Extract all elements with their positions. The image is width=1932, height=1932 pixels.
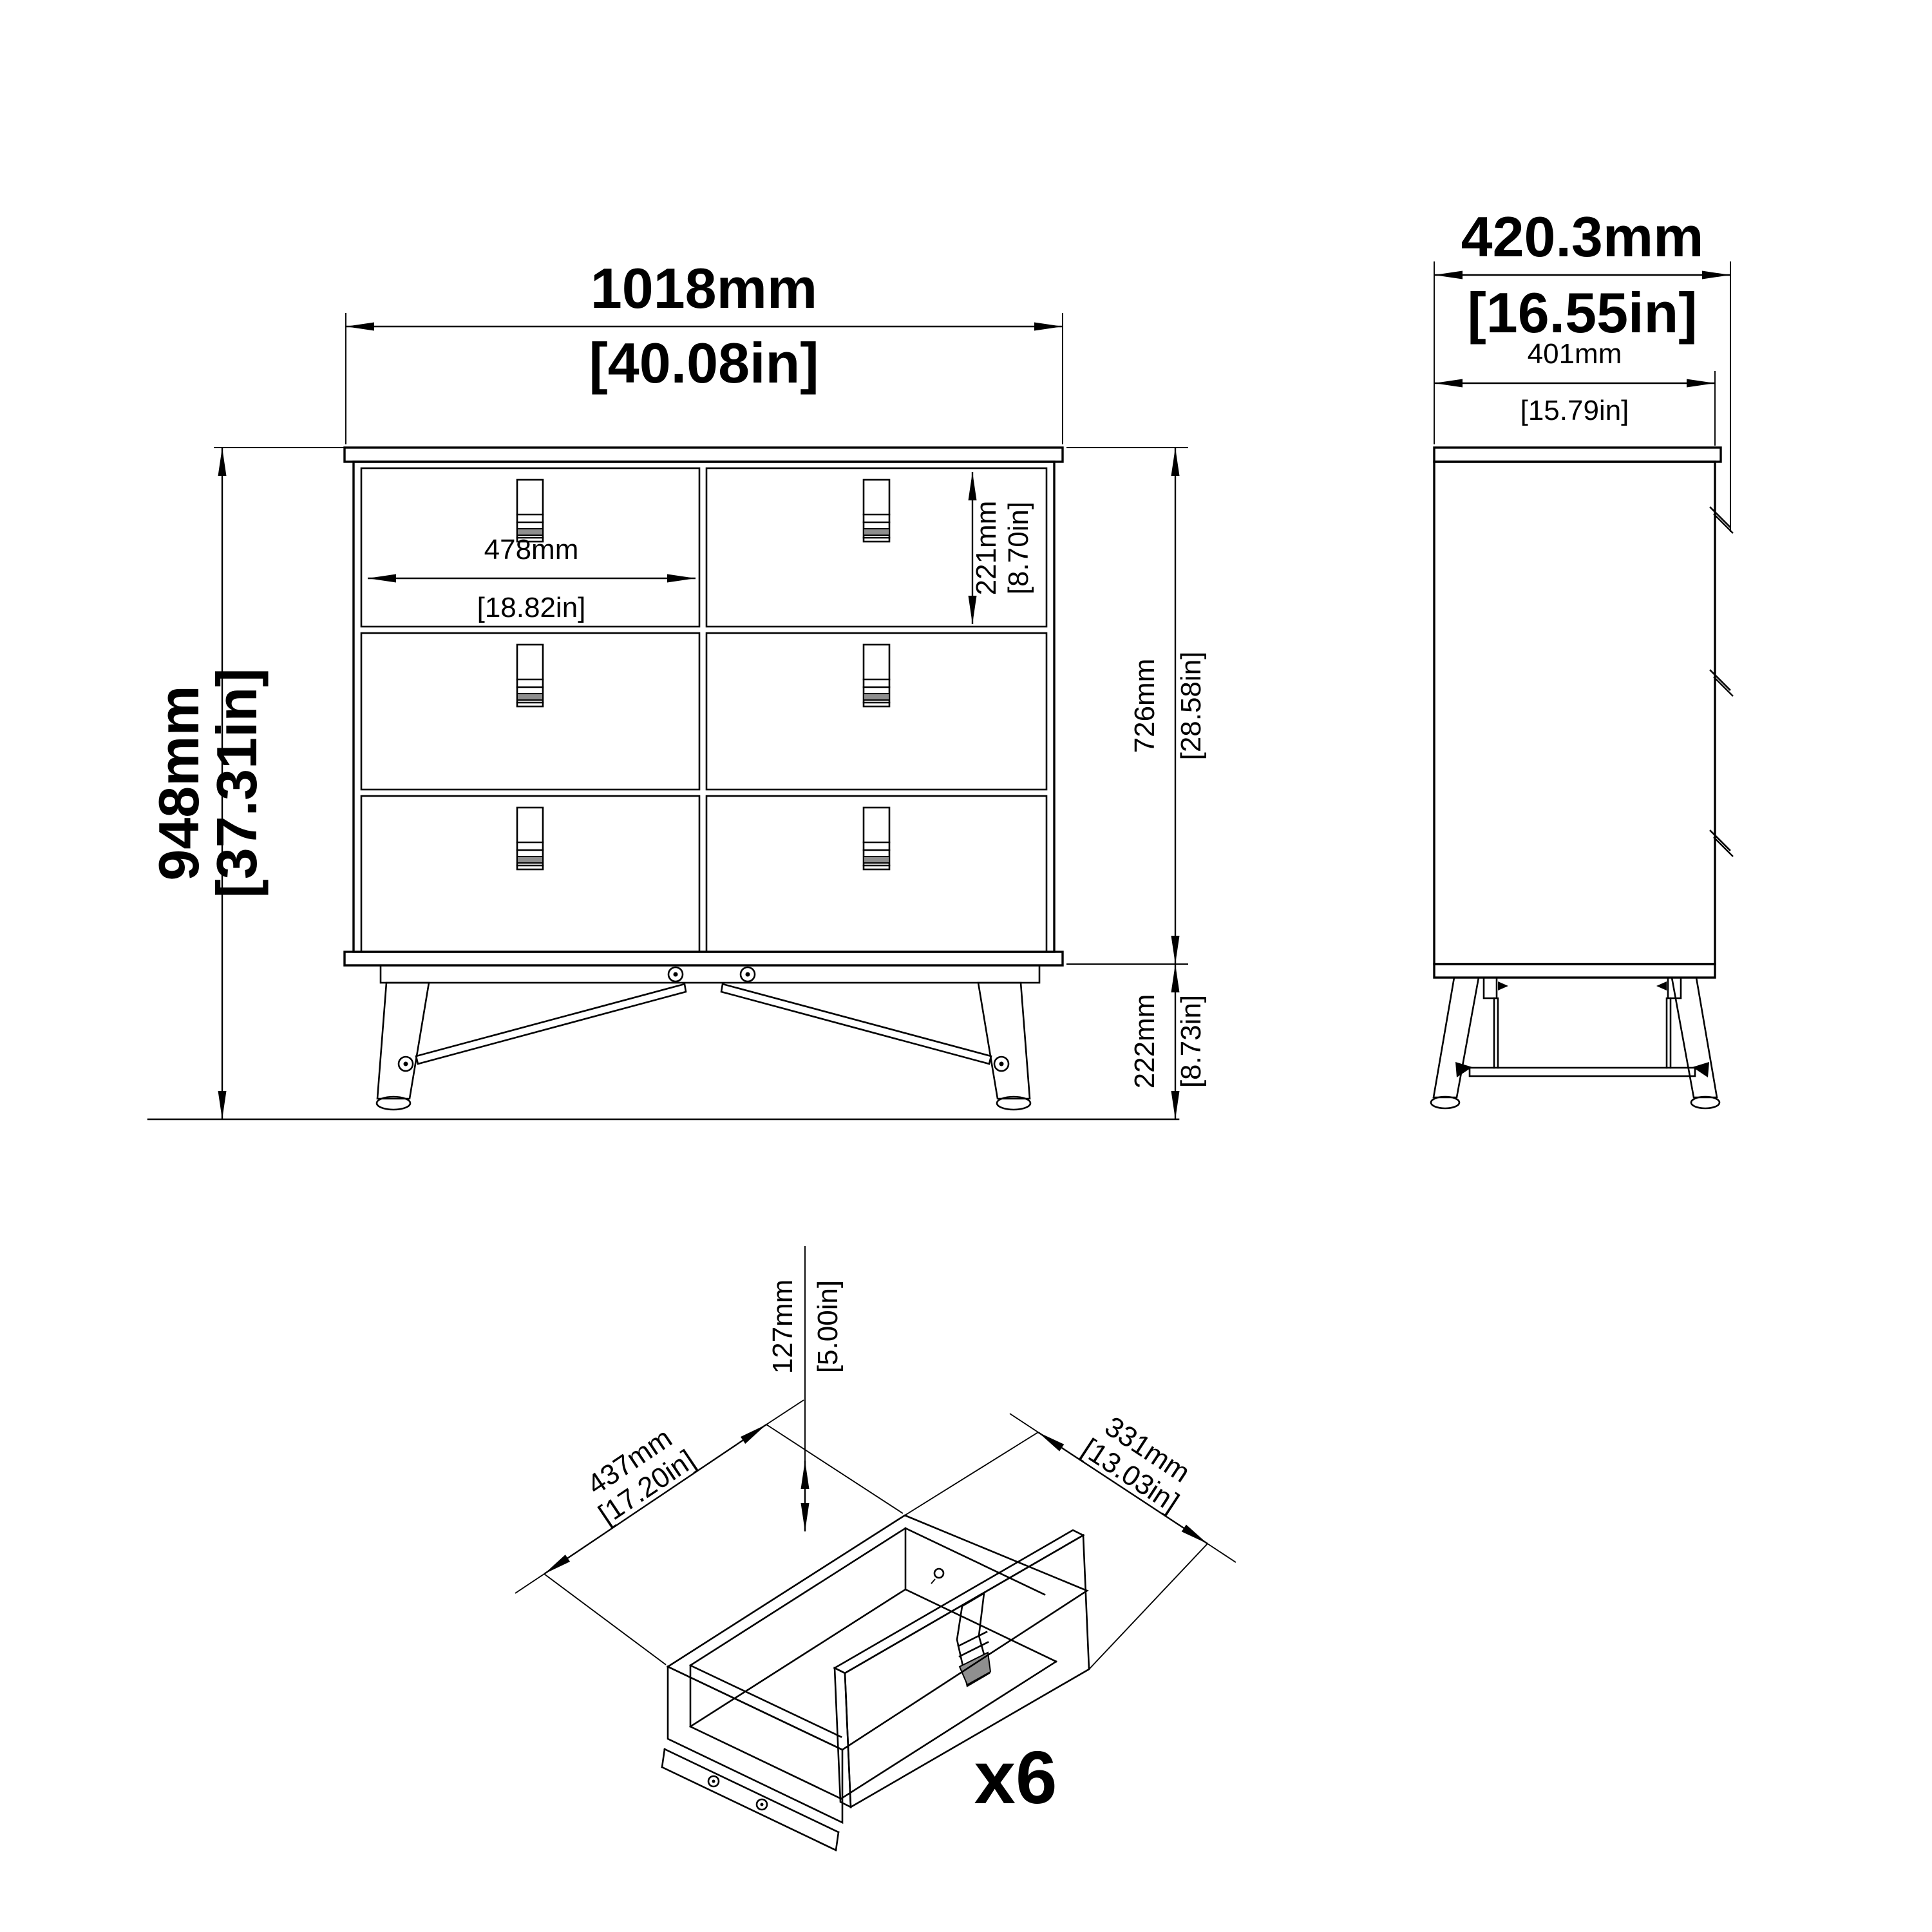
dim-front-height: 948mm [37.31in] (147, 448, 345, 1119)
front-top-panel (345, 448, 1063, 462)
front-drawer-4 (706, 633, 1046, 790)
dim-drawer-height: 127mm [5.00in] (767, 1246, 844, 1531)
side-leg-back (1431, 978, 1479, 1108)
technical-drawing: 1018mm [40.08in] 948mm [37.31in] 726mm [… (0, 0, 1932, 1932)
front-handle-5 (517, 808, 543, 869)
side-cabinet (1431, 448, 1733, 1108)
dim-side-inner-depth: 401mm [15.79in] (1434, 338, 1715, 446)
drawer-width-in-label: [18.82in] (477, 592, 586, 623)
front-body-mm-label: 726mm (1129, 659, 1160, 753)
front-width-in-label: [40.08in] (589, 331, 819, 395)
front-handle-3 (517, 645, 543, 706)
top-drawer-mm-label: 221mm (971, 501, 1002, 596)
front-handle-4 (864, 645, 889, 706)
drawer-detail-view: 127mm [5.00in] 437mm [17.20in] 331mm [13… (515, 1246, 1236, 1850)
side-depth-in-label: [16.55in] (1467, 281, 1697, 345)
front-bottom-panel (345, 952, 1063, 965)
front-leg-right (978, 983, 1030, 1110)
side-depth-mm-label: 420.3mm (1461, 205, 1704, 269)
back-wall-screw-icon (934, 1569, 943, 1578)
side-handle-3 (1710, 831, 1733, 857)
side-handle-2 (1710, 670, 1733, 696)
drawer-slide-rail (662, 1749, 838, 1850)
dim-front-top-drawer-height: 221mm [8.70in] (971, 472, 1034, 624)
front-drawer-5 (361, 796, 699, 952)
front-body-in-label: [28.58in] (1175, 652, 1207, 761)
dim-drawer-width: 437mm [17.20in] (515, 1400, 903, 1665)
front-leg-left (377, 983, 429, 1110)
drawer-width-mm-label: 478mm (484, 534, 579, 565)
side-top-panel (1434, 448, 1721, 462)
dim-front-body-height: 726mm [28.58in] (1066, 448, 1207, 964)
front-view: 1018mm [40.08in] 948mm [37.31in] 726mm [… (147, 256, 1207, 1119)
side-leg-front (1672, 978, 1719, 1108)
dim-front-drawer-width: 478mm [18.82in] (368, 534, 696, 623)
side-body (1434, 462, 1715, 964)
front-width-mm-label: 1018mm (591, 256, 817, 320)
front-leg-in-label: [8.73in] (1175, 995, 1207, 1088)
front-handle-1 (517, 480, 543, 542)
leg-bracket (1484, 978, 1497, 998)
front-height-mm-label: 948mm (147, 685, 211, 880)
front-leg-rail (381, 965, 1039, 983)
front-body (354, 462, 1054, 952)
drawer-quantity-label: x6 (974, 1736, 1057, 1819)
dim-front-leg-height: 222mm [8.73in] (1129, 964, 1207, 1119)
dim-drawer-depth: 331mm [13.03in] (905, 1406, 1236, 1669)
front-leg-mm-label: 222mm (1129, 994, 1160, 1089)
front-stretcher-left (416, 984, 686, 1064)
side-leg-assembly (1431, 978, 1719, 1108)
front-handle-6 (864, 808, 889, 869)
drawer-box-rim (668, 1515, 1087, 1750)
front-drawer-6 (706, 796, 1046, 952)
bracket-screw-icon (1498, 981, 1508, 990)
dim-front-width: 1018mm [40.08in] (346, 256, 1063, 444)
side-stretcher (1470, 1068, 1695, 1076)
drawer-height-mm-label: 127mm (767, 1280, 799, 1374)
side-handle-1 (1710, 507, 1733, 533)
drawer-height-in-label: [5.00in] (812, 1280, 844, 1373)
side-inner-mm-label: 401mm (1528, 338, 1622, 370)
side-bottom-panel (1434, 964, 1715, 978)
front-rail-screws (668, 967, 755, 981)
bracket-screw-icon (1656, 981, 1667, 990)
side-inner-in-label: [15.79in] (1520, 395, 1629, 426)
drawer-left-side (668, 1667, 842, 1823)
top-drawer-in-label: [8.70in] (1003, 502, 1034, 594)
front-handle-2 (864, 480, 889, 542)
front-stretcher-right (721, 984, 991, 1064)
front-height-in-label: [37.31in] (205, 668, 269, 898)
side-view: 420.3mm [16.55in] 401mm [15.79in] (1431, 205, 1733, 1108)
front-drawer-3 (361, 633, 699, 790)
